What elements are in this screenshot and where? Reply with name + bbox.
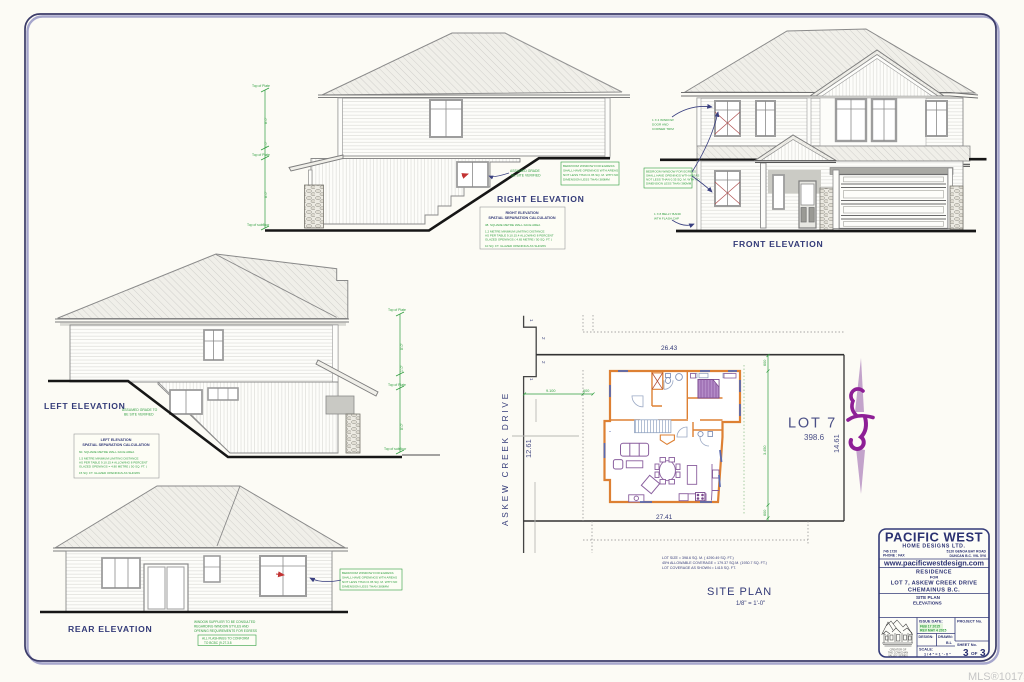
svg-text:TO BCBC (9.27.3.8: TO BCBC (9.27.3.8 bbox=[204, 641, 232, 645]
svg-text:60. SQUARE METRE WALL FACE ARE: 60. SQUARE METRE WALL FACE AREA bbox=[79, 450, 134, 454]
svg-text:OPENING REQUIREMENTS FOR EGRES: OPENING REQUIREMENTS FOR EGRESS bbox=[194, 629, 257, 633]
svg-text:FRONT ELEVATION: FRONT ELEVATION bbox=[733, 239, 823, 249]
svg-text:SPATIAL SEPARATION CALCULATION: SPATIAL SEPARATION CALCULATION bbox=[82, 443, 150, 447]
svg-text:ASSUMED GRADE TO: ASSUMED GRADE TO bbox=[122, 408, 158, 412]
svg-text:DESIGN:: DESIGN: bbox=[919, 635, 934, 639]
svg-text:WINDOW SUPPLIER TO BE CONSULTE: WINDOW SUPPLIER TO BE CONSULTED bbox=[194, 620, 256, 624]
svg-text:RIGHT ELEVATION: RIGHT ELEVATION bbox=[505, 211, 538, 215]
svg-text:REAR ELEVATION: REAR ELEVATION bbox=[68, 624, 152, 634]
svg-text:SCALE:: SCALE: bbox=[919, 648, 933, 652]
svg-text:27.41: 27.41 bbox=[656, 514, 673, 521]
svg-text:VALLEY SERIES: VALLEY SERIES bbox=[888, 653, 908, 657]
svg-text:Top of subfloor: Top of subfloor bbox=[247, 223, 270, 227]
svg-text:1/8" = 1'-0": 1/8" = 1'-0" bbox=[736, 601, 765, 607]
svg-text:DIMENSION LESS THAN 380MM: DIMENSION LESS THAN 380MM bbox=[563, 178, 610, 182]
svg-text:ASKEW CREEK DRIVE: ASKEW CREEK DRIVE bbox=[501, 391, 510, 526]
svg-text:1'-0": 1'-0" bbox=[400, 364, 404, 372]
svg-text:CORNER TRIM: CORNER TRIM bbox=[652, 127, 674, 131]
svg-text:5120 GENOA BAY ROAD: 5120 GENOA BAY ROAD bbox=[947, 550, 987, 554]
svg-text:NOT LESS THAN 0.35 SQ. M. WTH: NOT LESS THAN 0.35 SQ. M. WTH NO bbox=[342, 580, 398, 584]
svg-text:3: 3 bbox=[963, 648, 969, 659]
svg-text:8'-0": 8'-0" bbox=[264, 116, 268, 124]
svg-text:LEFT ELEVATION: LEFT ELEVATION bbox=[101, 438, 132, 442]
svg-text:ASSUMED GRADE: ASSUMED GRADE bbox=[510, 169, 541, 173]
svg-text:ISSUE DATE:: ISSUE DATE: bbox=[919, 620, 943, 624]
svg-text:2: 2 bbox=[541, 337, 546, 340]
svg-text:1: 1 bbox=[529, 319, 534, 322]
svg-text:1'-0": 1'-0" bbox=[264, 140, 268, 148]
svg-text:DUNCAN B.C. V9L 5Y6: DUNCAN B.C. V9L 5Y6 bbox=[950, 554, 987, 558]
svg-text:38. SQUARE METRE WALL FACE ARE: 38. SQUARE METRE WALL FACE AREA bbox=[485, 223, 540, 227]
svg-text:600: 600 bbox=[583, 389, 589, 393]
svg-text:B.L: B.L bbox=[946, 641, 953, 645]
svg-text:398.6: 398.6 bbox=[804, 433, 825, 442]
svg-text:CHEMAINUS B.C.: CHEMAINUS B.C. bbox=[908, 588, 960, 594]
svg-text:Top of Plate: Top of Plate bbox=[252, 84, 270, 88]
svg-text:OF: OF bbox=[971, 651, 978, 656]
svg-text:LOT SIZE = 398.6 SQ. M. (: LOT SIZE = 398.6 SQ. M. ( 4290.49 SQ. FT… bbox=[662, 556, 734, 560]
svg-text:GLAZED OPENINGS ( 4.65 METRE: GLAZED OPENINGS ( 4.65 METRE / 50 SQ. FT… bbox=[485, 238, 552, 242]
svg-text:DRAWN:: DRAWN: bbox=[938, 635, 953, 639]
svg-text:LOT COVERAGE AS SHOWN =: LOT COVERAGE AS SHOWN = 1415 SQ. FT. bbox=[662, 566, 736, 570]
svg-text:Top of Plate: Top of Plate bbox=[388, 308, 406, 312]
svg-text:Top of subfloor: Top of subfloor bbox=[384, 447, 407, 451]
svg-text:15 SQ. FT. GLAZED OPENINGS AS: 15 SQ. FT. GLAZED OPENINGS AS SHOWN bbox=[79, 471, 140, 475]
svg-text:BE SITE VERIFIED: BE SITE VERIFIED bbox=[124, 413, 154, 417]
svg-text:9.100: 9.100 bbox=[546, 389, 556, 393]
svg-text:Top of Plate: Top of Plate bbox=[388, 383, 406, 387]
svg-text:SITE PLAN: SITE PLAN bbox=[707, 586, 772, 598]
svg-text:3.450: 3.450 bbox=[763, 445, 767, 455]
svg-text:BEDROOM WINDOW FOR EGRESS: BEDROOM WINDOW FOR EGRESS bbox=[563, 164, 615, 168]
svg-text:3: 3 bbox=[980, 648, 986, 659]
svg-text:DIMENSION LESS THAN 380MM: DIMENSION LESS THAN 380MM bbox=[646, 182, 692, 186]
svg-text:8'-0": 8'-0" bbox=[400, 342, 404, 350]
svg-text:SHALL HAVE OPENINGS WTH AREAS: SHALL HAVE OPENINGS WTH AREAS bbox=[563, 169, 618, 173]
svg-text:SHEET No.: SHEET No. bbox=[957, 643, 977, 647]
svg-text:Top of Plate: Top of Plate bbox=[252, 153, 270, 157]
svg-text:2: 2 bbox=[541, 361, 546, 364]
svg-text:8'-0": 8'-0" bbox=[264, 190, 268, 198]
svg-text:1 / 4 " = 1 ' - 0 ": 1 / 4 " = 1 ' - 0 " bbox=[924, 653, 951, 657]
svg-text:RIGHT ELEVATION: RIGHT ELEVATION bbox=[497, 194, 585, 204]
svg-text:LOT 7: LOT 7 bbox=[788, 416, 837, 432]
svg-text:SITE PLAN: SITE PLAN bbox=[916, 595, 941, 600]
svg-text:1: 1 bbox=[529, 378, 534, 381]
svg-text:MLS®1017569: MLS®1017569 bbox=[968, 671, 1024, 682]
svg-text:14.61: 14.61 bbox=[832, 434, 841, 453]
svg-text:26.43: 26.43 bbox=[661, 345, 678, 352]
svg-text:www.pacificwestdesign.com: www.pacificwestdesign.com bbox=[883, 559, 984, 568]
svg-text:600: 600 bbox=[763, 510, 767, 516]
svg-text:PACIFIC WEST: PACIFIC WEST bbox=[885, 530, 983, 545]
svg-text:BEDROOM WINDOW FOR EGRESS: BEDROOM WINDOW FOR EGRESS bbox=[342, 571, 394, 575]
svg-text:DOOR AND: DOOR AND bbox=[652, 123, 669, 127]
svg-text:WTH FLASH CAP: WTH FLASH CAP bbox=[654, 217, 679, 221]
svg-text:LEFT ELEVATION: LEFT ELEVATION bbox=[44, 401, 126, 411]
svg-text:1 X 8 BELLY BAND: 1 X 8 BELLY BAND bbox=[654, 212, 682, 216]
svg-text:10 SQ. FT. GLAZED OPENINGS AS: 10 SQ. FT. GLAZED OPENINGS AS SHOWN bbox=[485, 244, 546, 248]
svg-text:45% ALLOWABLE COVERAGE = 1: 45% ALLOWABLE COVERAGE = 179.37 SQ.M. (1… bbox=[662, 561, 767, 565]
svg-text:1 X 4 WINDOW: 1 X 4 WINDOW bbox=[652, 118, 674, 122]
svg-text:NOT LESS THAN 0.35 SQ. M. WTH: NOT LESS THAN 0.35 SQ. M. WTH NO bbox=[563, 173, 619, 177]
svg-text:DIMENSION LESS THAN 380MM: DIMENSION LESS THAN 380MM bbox=[342, 585, 389, 589]
svg-text:600: 600 bbox=[763, 360, 767, 366]
svg-text:FOR: FOR bbox=[930, 575, 939, 580]
svg-text:ELEVATIONS: ELEVATIONS bbox=[913, 601, 942, 606]
svg-text:BE SITE VERIFIED: BE SITE VERIFIED bbox=[511, 174, 541, 178]
svg-text:12.61: 12.61 bbox=[524, 439, 533, 458]
svg-text:ALL FLASHINGS TO CONFORM: ALL FLASHINGS TO CONFORM bbox=[202, 637, 249, 641]
svg-text:GLAZED OPENINGS = 4.80 METRE: GLAZED OPENINGS = 4.80 METRE ( 50 SQ. FT… bbox=[79, 465, 147, 469]
svg-text:SHALL HAVE OPENINGS WTH AREAS: SHALL HAVE OPENINGS WTH AREAS bbox=[342, 576, 397, 580]
svg-text:PROJECT No.: PROJECT No. bbox=[957, 620, 982, 624]
svg-text:SPATIAL SEPARATION CALCULATION: SPATIAL SEPARATION CALCULATION bbox=[488, 216, 556, 220]
svg-text:REGARDING WINDOW STYLES AND: REGARDING WINDOW STYLES AND bbox=[194, 625, 249, 629]
svg-text:LOT 7, ASKEW CREEK DRIVE: LOT 7, ASKEW CREEK DRIVE bbox=[891, 581, 978, 587]
svg-text:REV MAY 4 2015: REV MAY 4 2015 bbox=[920, 629, 947, 633]
svg-text:PHONE : FAX: PHONE : FAX bbox=[883, 554, 905, 558]
svg-text:8'-0": 8'-0" bbox=[400, 422, 404, 430]
